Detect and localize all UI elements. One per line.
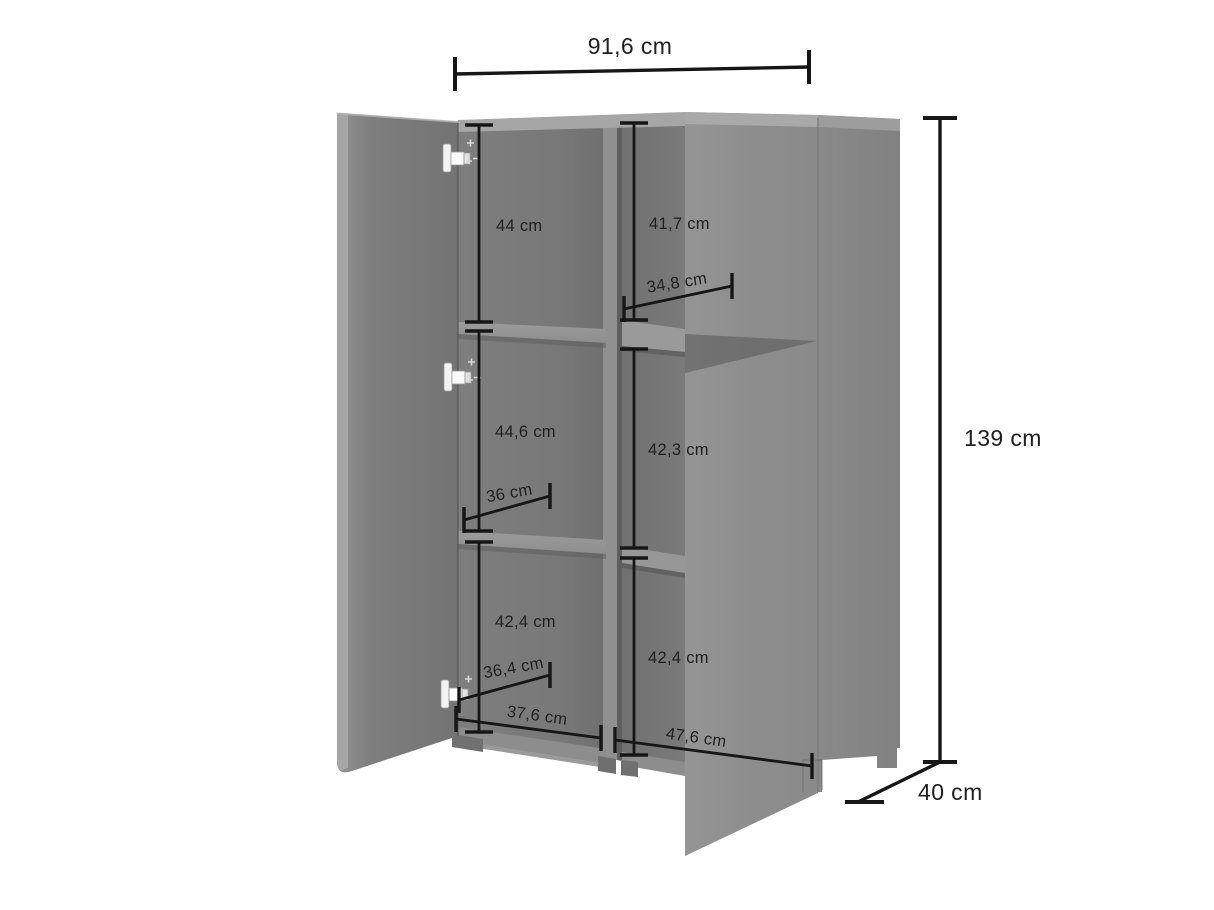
dimension-depth: 40 cm [845, 762, 983, 805]
dimension-label-left-middle: 44,6 cm [495, 423, 556, 441]
dimension-width: 91,6 cm [455, 33, 809, 91]
diagram-canvas: 91,6 cm 139 cm 40 cm 44 cm 44,6 cm 42,4 … [0, 0, 1214, 910]
cabinet-dimension-diagram: 91,6 cm 139 cm 40 cm 44 cm 44,6 cm 42,4 … [0, 0, 1214, 910]
left-door [337, 113, 458, 772]
dimension-label-height: 139 cm [964, 425, 1042, 451]
dimension-label-right-middle: 42,3 cm [648, 441, 709, 459]
dimension-label-left-bottom: 42,4 cm [495, 613, 556, 631]
center-partition-shadow [617, 118, 622, 761]
dimension-label-width: 91,6 cm [588, 33, 673, 59]
foot-partition-right [621, 760, 638, 777]
right-side-panel [803, 115, 900, 792]
dimension-label-left-top: 44 cm [496, 217, 542, 235]
dimension-label-right-top: 41,7 cm [649, 215, 710, 233]
dimension-label-depth: 40 cm [918, 779, 983, 805]
left-door-edge-highlight [337, 113, 348, 770]
center-partition [603, 118, 617, 760]
dimension-height: 139 cm [923, 118, 1042, 762]
foot-partition-left [598, 756, 616, 774]
dimension-label-right-bottom: 42,4 cm [648, 649, 709, 667]
